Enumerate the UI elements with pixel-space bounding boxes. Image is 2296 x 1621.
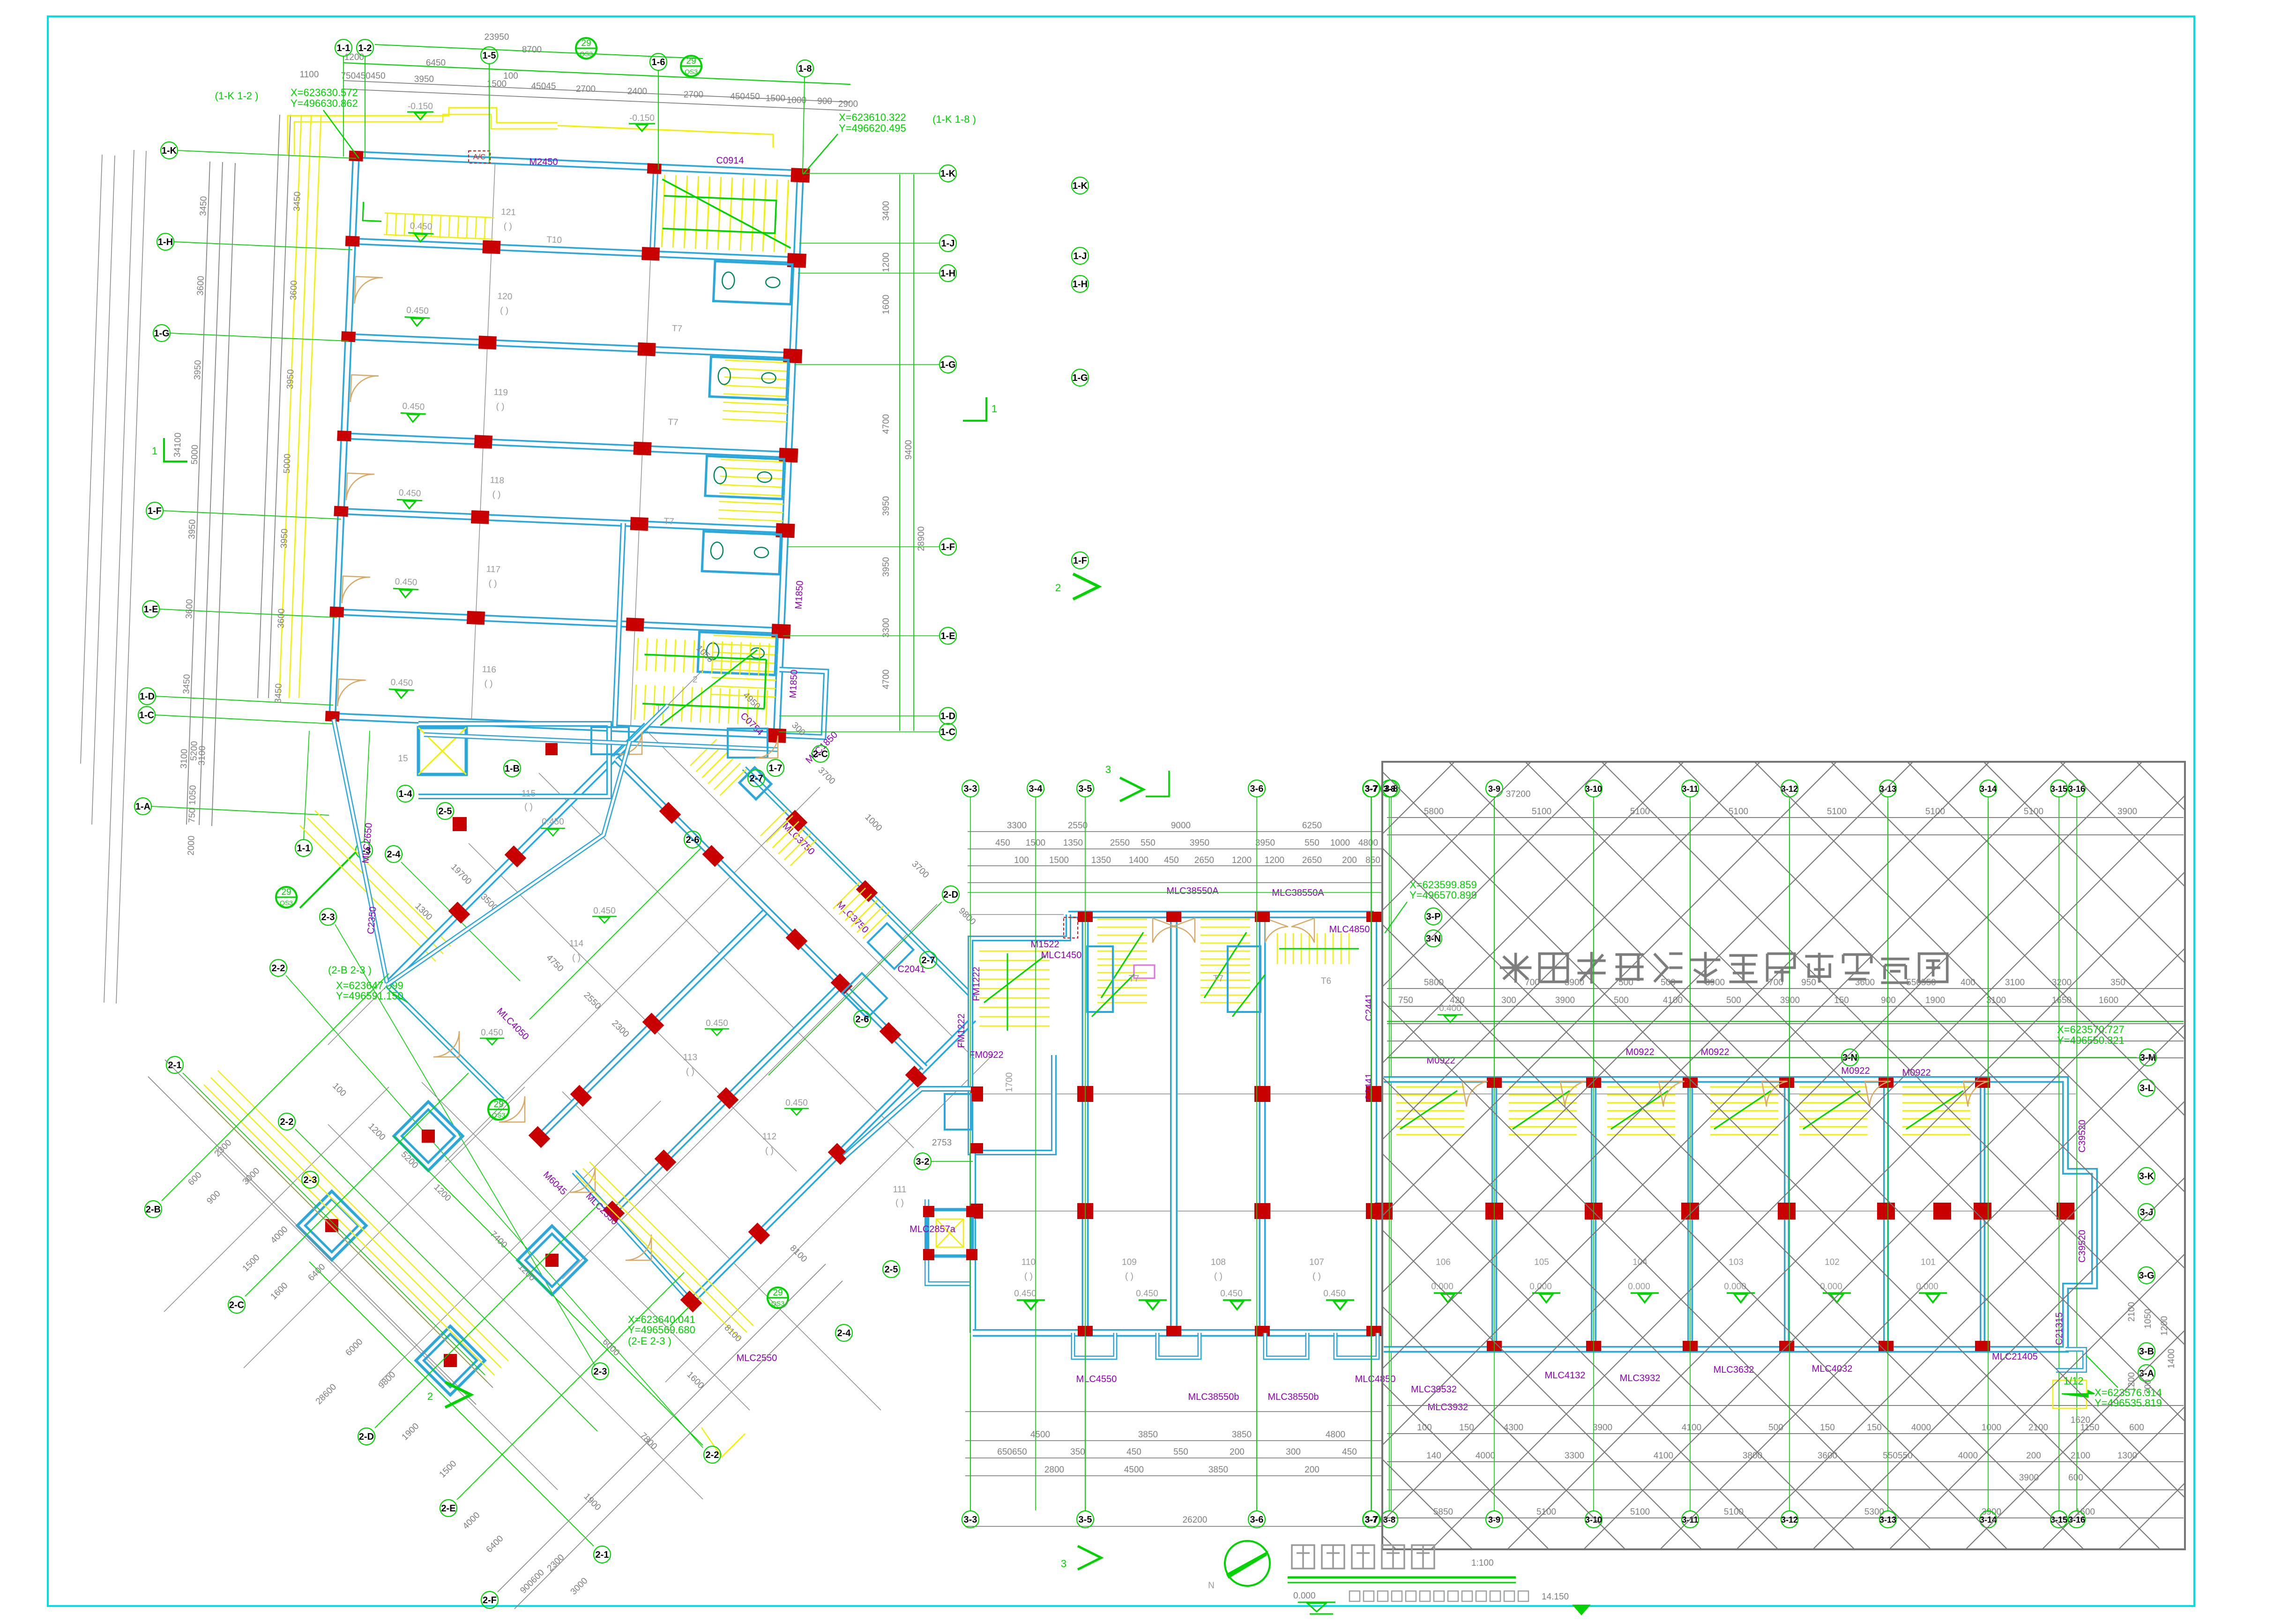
svg-text:3450: 3450: [273, 683, 283, 703]
svg-text:550: 550: [1173, 1447, 1188, 1457]
svg-text:3950: 3950: [193, 360, 203, 380]
svg-text:3-5: 3-5: [1079, 1515, 1092, 1525]
svg-text:3100: 3100: [197, 745, 207, 766]
svg-text:1:100: 1:100: [1471, 1558, 1494, 1568]
svg-text:1600: 1600: [881, 295, 891, 314]
svg-text:850: 850: [1365, 855, 1380, 865]
svg-text:2-6: 2-6: [856, 1014, 869, 1025]
svg-text:1-C: 1-C: [139, 710, 154, 721]
svg-text:MLC38550A: MLC38550A: [1272, 888, 1324, 898]
svg-text:1-F: 1-F: [1073, 556, 1087, 566]
svg-text:FM1222: FM1222: [971, 967, 982, 1001]
svg-text:0.450: 0.450: [706, 1019, 728, 1028]
svg-text:5100: 5100: [2024, 807, 2043, 817]
svg-text:0.000: 0.000: [1293, 1591, 1316, 1601]
svg-text:2-3: 2-3: [321, 912, 335, 922]
svg-text:1-K: 1-K: [162, 146, 177, 156]
svg-text:1350: 1350: [1091, 855, 1111, 865]
svg-text:15: 15: [398, 754, 408, 764]
svg-text:MLC38550b: MLC38550b: [1268, 1392, 1319, 1402]
svg-text:28900: 28900: [917, 527, 926, 551]
svg-text:2-3: 2-3: [594, 1367, 607, 1377]
svg-text:( ): ( ): [484, 679, 493, 689]
svg-text:3450: 3450: [292, 191, 302, 211]
svg-text:3450: 3450: [198, 196, 209, 216]
svg-text:6450: 6450: [426, 58, 446, 68]
svg-text:0.450: 0.450: [410, 221, 432, 232]
svg-text:3950: 3950: [279, 528, 290, 549]
svg-text:2700: 2700: [576, 84, 596, 94]
svg-text:120: 120: [497, 291, 513, 302]
svg-text:1-J: 1-J: [941, 238, 955, 249]
svg-text:750450450: 750450450: [341, 71, 385, 81]
svg-text:FM1222: FM1222: [956, 1013, 967, 1048]
svg-text:2-2: 2-2: [280, 1117, 294, 1127]
svg-text:3-2: 3-2: [916, 1157, 930, 1167]
svg-text:0.450: 0.450: [481, 1028, 503, 1038]
svg-text:3600: 3600: [289, 280, 299, 300]
svg-text:1350: 1350: [1063, 838, 1083, 848]
svg-text:2753: 2753: [932, 1138, 952, 1148]
svg-text:Y=496620.495: Y=496620.495: [839, 122, 906, 134]
svg-text:3600: 3600: [276, 608, 286, 628]
svg-text:900: 900: [817, 97, 832, 106]
svg-text:C2441: C2441: [1364, 1073, 1374, 1101]
svg-text:( ): ( ): [572, 953, 581, 963]
svg-text:Y=496591.150: Y=496591.150: [336, 990, 403, 1002]
svg-text:2550: 2550: [1110, 838, 1130, 848]
svg-text:1500: 1500: [766, 94, 785, 104]
svg-text:8700: 8700: [522, 45, 542, 55]
svg-text:3600: 3600: [195, 275, 206, 296]
svg-text:37200: 37200: [1506, 789, 1531, 799]
svg-text:MLC38550b: MLC38550b: [1188, 1392, 1239, 1402]
svg-text:5100: 5100: [1925, 807, 1945, 817]
svg-text:2-4: 2-4: [387, 849, 401, 860]
svg-text:1-E: 1-E: [940, 631, 955, 641]
svg-text:450: 450: [995, 838, 1010, 848]
svg-text:( ): ( ): [488, 579, 497, 589]
svg-text:112: 112: [762, 1132, 776, 1142]
svg-text:1-A: 1-A: [135, 802, 150, 812]
svg-text:1-4: 1-4: [399, 789, 413, 799]
svg-text:(2-E 2-3 ): (2-E 2-3 ): [628, 1335, 671, 1347]
svg-text:3300: 3300: [1007, 821, 1027, 831]
svg-text:2-D: 2-D: [359, 1432, 374, 1442]
svg-text:N: N: [1208, 1581, 1215, 1591]
svg-text:650650: 650650: [997, 1447, 1027, 1457]
svg-text:2-F: 2-F: [483, 1595, 497, 1606]
svg-text:450450: 450450: [730, 92, 760, 102]
svg-text:2700: 2700: [684, 90, 703, 100]
svg-text:-0.150: -0.150: [408, 102, 433, 112]
svg-text:300: 300: [1286, 1447, 1301, 1457]
svg-text:23950: 23950: [485, 32, 509, 42]
svg-text:1-2: 1-2: [358, 43, 372, 53]
svg-text:450: 450: [1342, 1447, 1357, 1457]
svg-text:0.450: 0.450: [395, 577, 417, 587]
svg-text:( ): ( ): [496, 402, 505, 412]
svg-text:( ): ( ): [524, 802, 533, 812]
svg-text:200: 200: [1342, 855, 1357, 865]
svg-text:1-1: 1-1: [337, 43, 350, 53]
svg-text:0.450: 0.450: [1323, 1289, 1346, 1299]
svg-text:750: 750: [187, 808, 197, 823]
svg-text:M1850: M1850: [788, 669, 799, 699]
svg-text:3-6: 3-6: [1250, 1515, 1264, 1525]
svg-text:1-6: 1-6: [652, 57, 665, 67]
svg-text:2: 2: [1055, 582, 1061, 594]
svg-text:1-E: 1-E: [143, 604, 158, 615]
svg-text:0.450: 0.450: [785, 1098, 808, 1108]
svg-text:5800: 5800: [1424, 807, 1444, 817]
svg-text:3: 3: [1061, 1558, 1066, 1569]
svg-text:0.450: 0.450: [1014, 1289, 1036, 1299]
svg-text:0.450: 0.450: [406, 305, 429, 316]
svg-text:0.450: 0.450: [398, 488, 421, 498]
svg-text:( ): ( ): [765, 1146, 774, 1156]
svg-text:T7: T7: [671, 324, 682, 334]
svg-text:4700: 4700: [881, 669, 891, 689]
svg-text:5000: 5000: [190, 445, 200, 465]
svg-text:Y=496630.862: Y=496630.862: [291, 97, 358, 109]
svg-text:Y=496569.680: Y=496569.680: [628, 1324, 695, 1336]
svg-text:116: 116: [482, 664, 496, 675]
svg-text:3850: 3850: [1138, 1430, 1158, 1440]
svg-text:1-H: 1-H: [158, 237, 173, 247]
svg-text:X=623630.572: X=623630.572: [291, 87, 358, 98]
svg-text:2-C: 2-C: [229, 1300, 244, 1310]
svg-text:1-B: 1-B: [505, 764, 520, 774]
svg-text:1200: 1200: [1232, 855, 1252, 865]
svg-text:1-G: 1-G: [154, 328, 169, 339]
svg-text:111: 111: [893, 1185, 907, 1195]
svg-text:0.450: 0.450: [542, 817, 564, 827]
svg-text:100: 100: [1014, 855, 1029, 865]
svg-text:0.450: 0.450: [593, 906, 616, 916]
svg-text:3600: 3600: [184, 599, 194, 619]
svg-text:MLC1450: MLC1450: [1041, 950, 1082, 960]
svg-text:M2450: M2450: [529, 157, 558, 167]
svg-text:550: 550: [1141, 838, 1155, 848]
svg-text:350: 350: [1070, 1447, 1085, 1457]
svg-text:1-D: 1-D: [140, 692, 155, 702]
svg-text:( ): ( ): [686, 1067, 694, 1077]
svg-text:2-6: 2-6: [686, 835, 700, 845]
svg-text:3: 3: [1105, 764, 1111, 775]
svg-text:T6: T6: [1321, 976, 1331, 986]
svg-text:1100: 1100: [300, 70, 319, 80]
svg-text:550: 550: [1305, 838, 1319, 848]
svg-text:MLC38550A: MLC38550A: [1166, 886, 1219, 896]
svg-text:9400: 9400: [904, 440, 914, 460]
svg-text:119: 119: [493, 387, 508, 398]
svg-text:5100: 5100: [1729, 807, 1748, 817]
svg-text:1-J: 1-J: [1073, 251, 1087, 261]
svg-text:2550: 2550: [1068, 821, 1088, 831]
svg-text:2650: 2650: [1194, 855, 1214, 865]
svg-text:( ): ( ): [1024, 1272, 1033, 1281]
svg-text:1050: 1050: [187, 785, 198, 805]
svg-text:450: 450: [1164, 855, 1179, 865]
svg-text:1-F: 1-F: [941, 542, 955, 552]
svg-text:MLC4550: MLC4550: [1076, 1374, 1117, 1384]
svg-text:1-7: 1-7: [769, 763, 783, 773]
svg-text:6250: 6250: [1302, 821, 1322, 831]
svg-text:1-H: 1-H: [940, 268, 955, 279]
svg-text:1-K: 1-K: [940, 169, 956, 179]
svg-text:200: 200: [1305, 1465, 1319, 1475]
svg-text:4800: 4800: [1358, 838, 1378, 848]
svg-text:3-3: 3-3: [964, 1515, 977, 1525]
svg-text:114: 114: [569, 939, 584, 949]
svg-text:0.450: 0.450: [1136, 1289, 1158, 1299]
svg-text:3950: 3950: [285, 369, 296, 389]
svg-text:2-C: 2-C: [813, 749, 828, 759]
svg-text:( ): ( ): [500, 305, 509, 316]
svg-text:45045: 45045: [531, 82, 556, 91]
svg-text:4800: 4800: [1326, 1430, 1345, 1440]
svg-text:1-5: 1-5: [483, 51, 496, 61]
svg-text:C2441: C2441: [1364, 994, 1374, 1021]
svg-text:100: 100: [503, 71, 518, 81]
svg-text:2800: 2800: [1044, 1465, 1064, 1475]
svg-text:A/C: A/C: [473, 153, 486, 161]
svg-text:2-E: 2-E: [441, 1503, 455, 1514]
svg-text:T7: T7: [663, 516, 674, 527]
svg-text:X=623610.322: X=623610.322: [839, 112, 906, 123]
svg-text:2-2: 2-2: [272, 963, 285, 974]
svg-text:( ): ( ): [492, 490, 501, 500]
svg-text:5100: 5100: [1827, 807, 1847, 817]
svg-text:108: 108: [1211, 1257, 1226, 1267]
svg-text:( ): ( ): [895, 1198, 904, 1208]
svg-text:MLC2550: MLC2550: [737, 1353, 777, 1363]
svg-text:1200: 1200: [881, 253, 891, 272]
svg-text:2-3: 2-3: [304, 1175, 317, 1185]
svg-text:118: 118: [490, 476, 504, 486]
svg-text:0.450: 0.450: [1220, 1289, 1243, 1299]
svg-text:5100: 5100: [1630, 807, 1650, 817]
svg-text:3-4: 3-4: [1029, 784, 1043, 794]
svg-text:( ): ( ): [1125, 1272, 1133, 1281]
svg-text:3950: 3950: [1190, 838, 1209, 848]
svg-text:3950: 3950: [187, 519, 197, 539]
svg-text:( ): ( ): [1214, 1272, 1223, 1281]
svg-text:109: 109: [1122, 1257, 1137, 1267]
svg-text:-0.150: -0.150: [629, 113, 655, 123]
svg-text:3950: 3950: [1255, 838, 1275, 848]
svg-text:5100: 5100: [1532, 807, 1551, 817]
svg-text:1-1: 1-1: [297, 843, 311, 854]
svg-text:2-5: 2-5: [885, 1264, 898, 1275]
svg-text:4700: 4700: [881, 414, 891, 434]
svg-text:2-4: 2-4: [837, 1328, 851, 1338]
svg-text:200: 200: [1230, 1447, 1245, 1457]
svg-text:T7: T7: [668, 417, 678, 428]
svg-text:1: 1: [991, 403, 997, 415]
svg-text:( ): ( ): [1312, 1272, 1321, 1281]
svg-text:1-C: 1-C: [940, 727, 955, 737]
svg-text:3850: 3850: [1208, 1465, 1228, 1475]
svg-text:1-G: 1-G: [940, 360, 955, 370]
svg-text:FM0922: FM0922: [969, 1050, 1003, 1060]
svg-text:(1-K 1-8 ): (1-K 1-8 ): [932, 113, 976, 125]
svg-text:1-G: 1-G: [1072, 373, 1088, 383]
svg-text:3-5: 3-5: [1079, 784, 1092, 794]
svg-text:2650: 2650: [1302, 855, 1322, 865]
svg-text:2-1: 2-1: [596, 1550, 609, 1560]
svg-text:M1850: M1850: [793, 580, 805, 610]
svg-text:T10: T10: [546, 235, 562, 245]
svg-text:1200: 1200: [344, 52, 364, 62]
svg-text:1200: 1200: [1265, 855, 1284, 865]
svg-text:C0914: C0914: [716, 156, 744, 166]
svg-text:( ): ( ): [503, 221, 512, 231]
svg-text:3400: 3400: [881, 201, 891, 221]
svg-text:(2-B 2-3 ): (2-B 2-3 ): [328, 964, 372, 976]
svg-text:4500: 4500: [1124, 1465, 1144, 1475]
svg-text:1-K: 1-K: [1073, 181, 1088, 191]
svg-text:1-8: 1-8: [798, 64, 812, 74]
svg-text:2-B: 2-B: [146, 1205, 161, 1215]
svg-text:2-5: 2-5: [439, 806, 452, 817]
svg-text:121: 121: [501, 207, 516, 217]
svg-text:MLC2857a: MLC2857a: [909, 1224, 956, 1234]
svg-text:2400: 2400: [627, 87, 647, 97]
svg-text:2-2: 2-2: [706, 1450, 719, 1460]
svg-text:14.150: 14.150: [1542, 1592, 1569, 1602]
svg-text:1-D: 1-D: [940, 711, 955, 721]
svg-text:1000: 1000: [787, 96, 806, 105]
svg-text:(1-K 1-2 ): (1-K 1-2 ): [215, 90, 259, 102]
svg-text:M1522: M1522: [1030, 939, 1059, 950]
svg-text:1000: 1000: [1330, 838, 1350, 848]
svg-text:2-7: 2-7: [922, 955, 935, 966]
svg-text:450: 450: [1126, 1447, 1141, 1457]
svg-text:117: 117: [486, 565, 500, 575]
svg-text:2900: 2900: [838, 99, 858, 109]
svg-text:1400: 1400: [1129, 855, 1148, 865]
svg-text:2-D: 2-D: [943, 890, 958, 900]
svg-text:3900: 3900: [2117, 807, 2137, 817]
svg-text:2: 2: [427, 1390, 433, 1402]
svg-text:C2041: C2041: [898, 964, 925, 974]
svg-text:3950: 3950: [414, 74, 434, 84]
svg-text:1500: 1500: [1049, 855, 1069, 865]
svg-text:110: 110: [1021, 1257, 1036, 1267]
svg-text:4500: 4500: [1030, 1430, 1050, 1440]
svg-text:T7: T7: [1213, 974, 1223, 984]
svg-text:3850: 3850: [1232, 1430, 1252, 1440]
svg-text:5000: 5000: [282, 454, 292, 474]
svg-text:1700: 1700: [1005, 1072, 1014, 1092]
svg-text:MLC4850: MLC4850: [1329, 924, 1370, 935]
svg-text:2-7: 2-7: [750, 773, 763, 784]
svg-text:3-6: 3-6: [1250, 784, 1264, 794]
svg-text:26200: 26200: [1183, 1515, 1208, 1525]
svg-text:0.450: 0.450: [390, 677, 413, 688]
svg-text:34100: 34100: [172, 432, 183, 458]
svg-text:3950: 3950: [881, 557, 891, 577]
svg-text:107: 107: [1309, 1257, 1324, 1267]
svg-text:3-7: 3-7: [1365, 784, 1377, 794]
svg-text:3100: 3100: [179, 749, 189, 769]
svg-text:3950: 3950: [881, 496, 891, 516]
svg-text:9000: 9000: [1171, 821, 1191, 831]
svg-text:3300: 3300: [881, 618, 891, 638]
svg-text:113: 113: [683, 1053, 697, 1063]
svg-text:3-3: 3-3: [964, 784, 977, 794]
svg-text:2000: 2000: [186, 835, 196, 855]
svg-text:0.450: 0.450: [402, 402, 425, 412]
svg-text:115: 115: [522, 789, 536, 799]
svg-text:1: 1: [152, 445, 157, 457]
svg-text:3-7: 3-7: [1365, 1515, 1377, 1524]
svg-text:3450: 3450: [182, 674, 192, 694]
svg-text:T7: T7: [1129, 974, 1139, 984]
svg-text:1-F: 1-F: [148, 506, 162, 516]
svg-text:1-H: 1-H: [1073, 279, 1088, 290]
